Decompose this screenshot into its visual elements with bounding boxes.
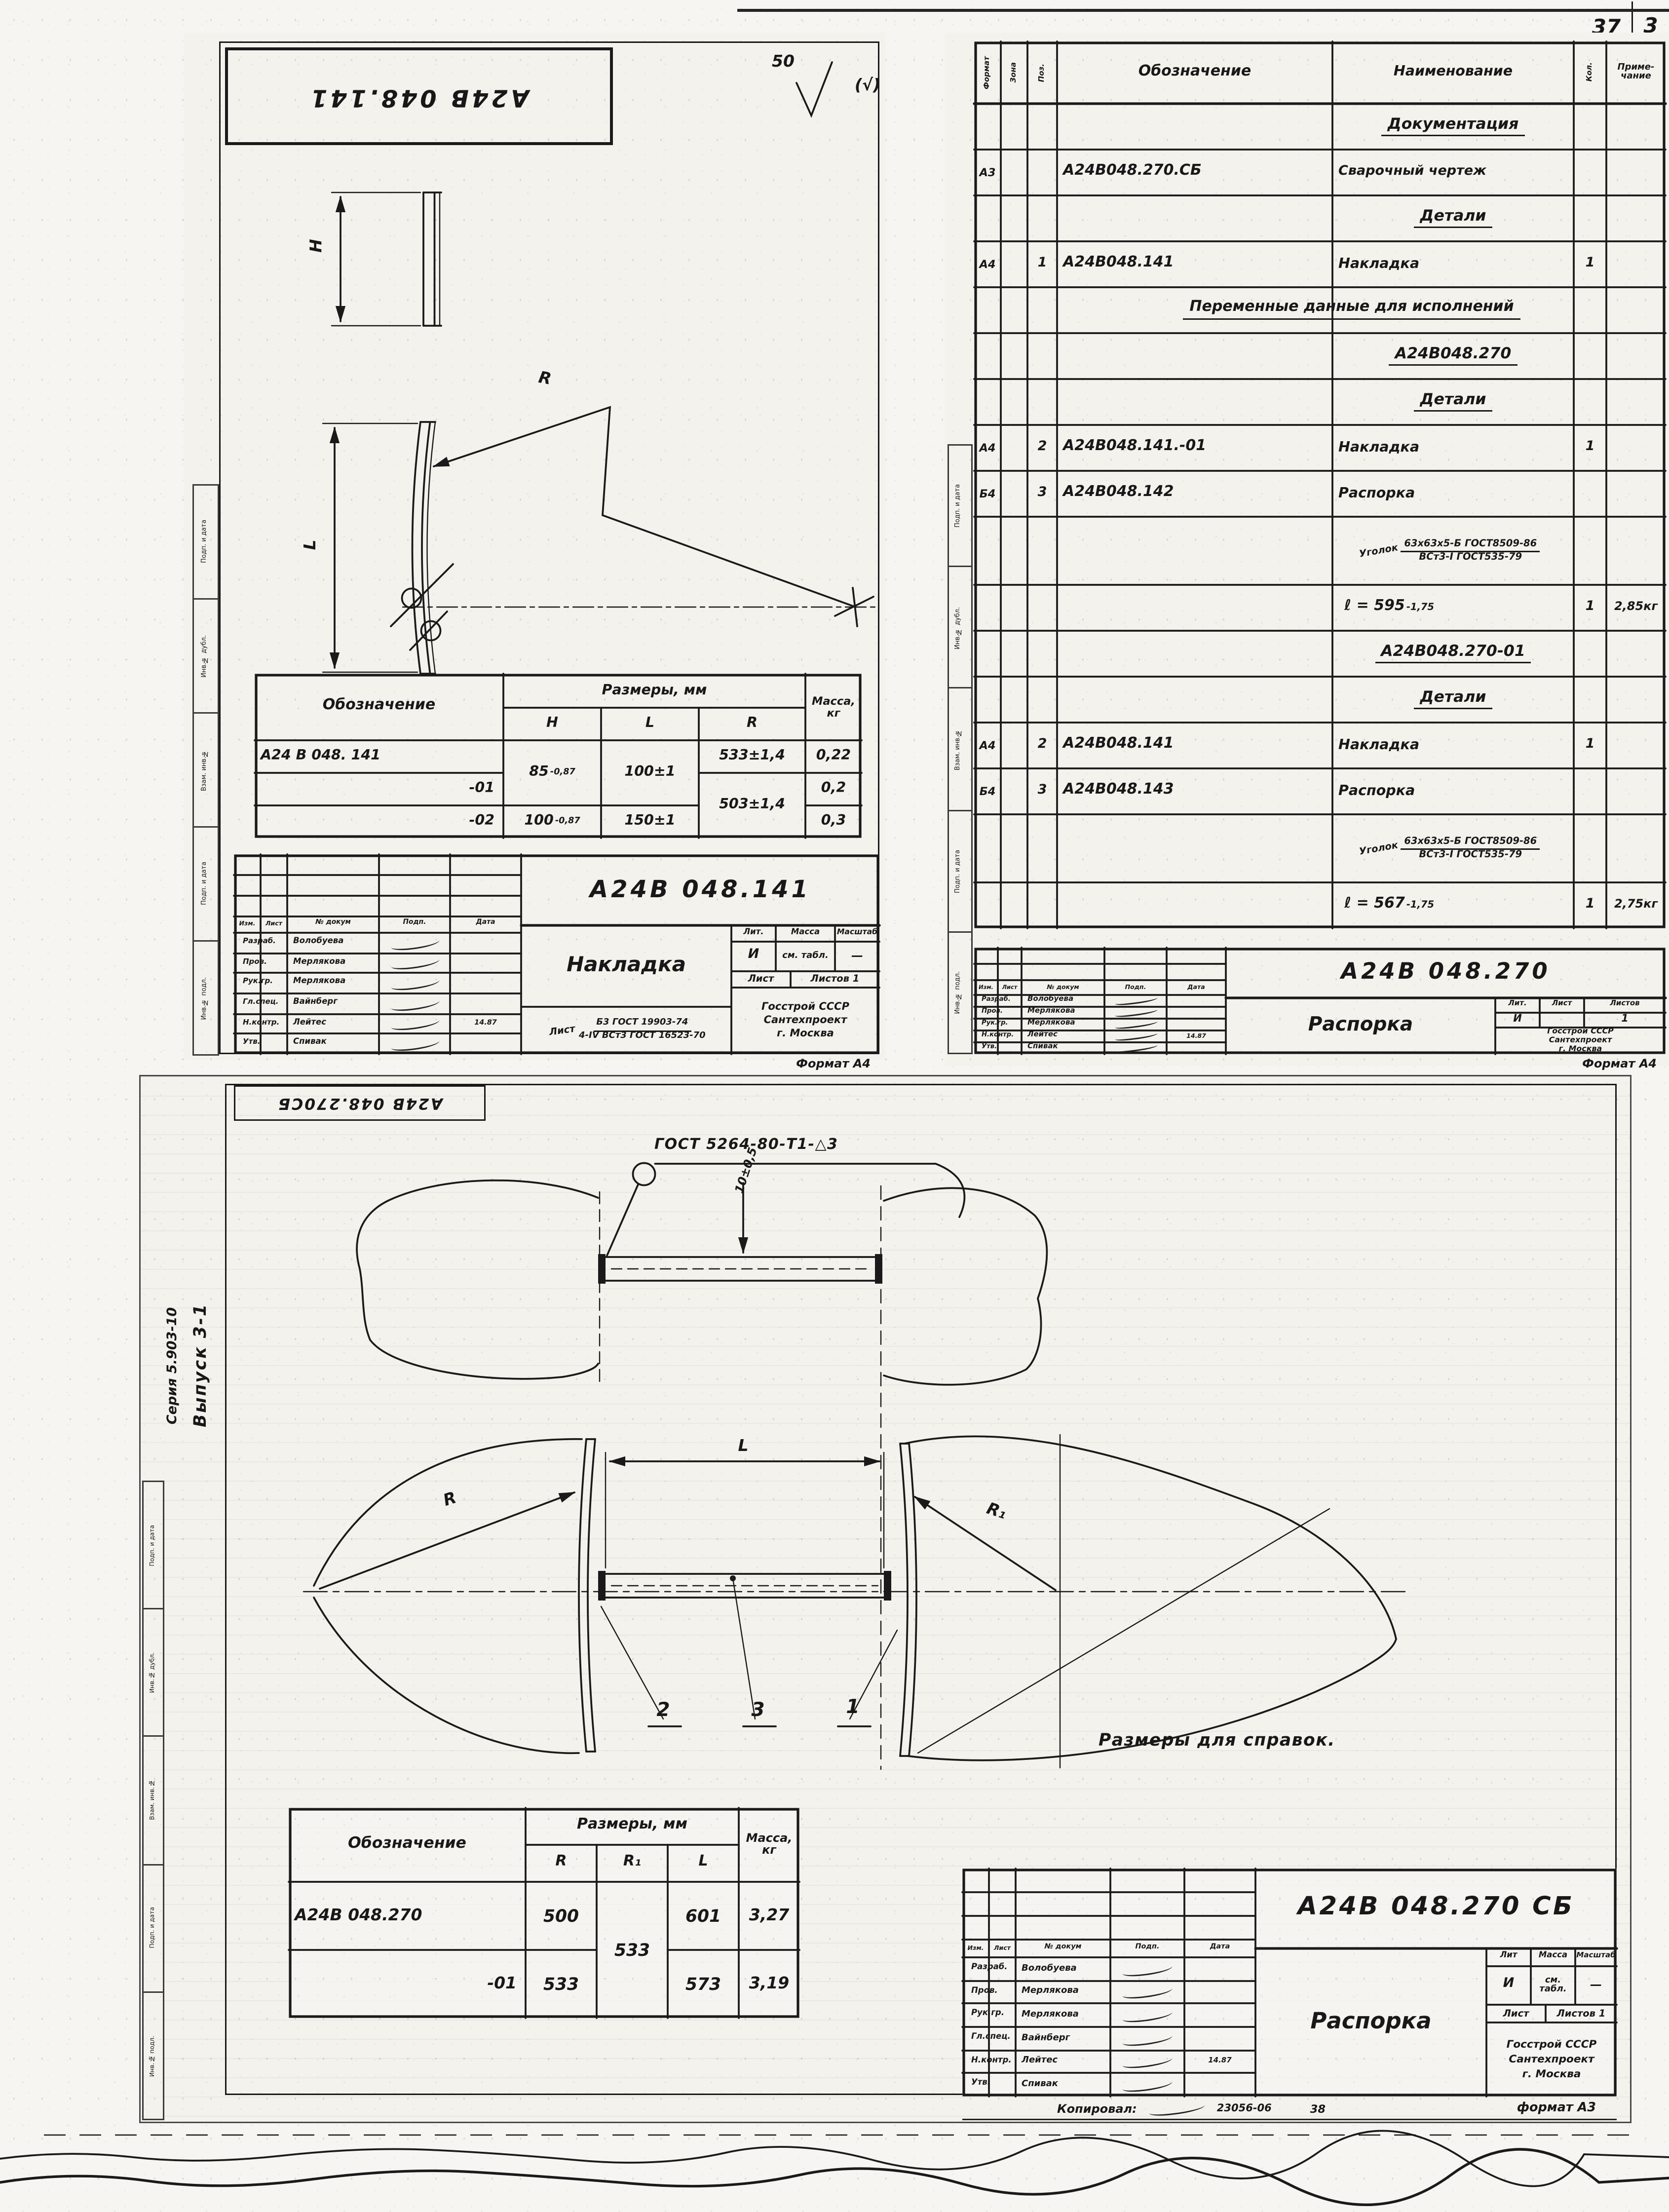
mass-value: см. табл. [1531, 1966, 1575, 2005]
angle-fraction: 63х63х5-Б ГОСТ8509-86 ВСт3-I ГОСТ535-79 [1401, 836, 1540, 861]
doc-number: А24В 048.141 [521, 857, 879, 922]
format-label: Формат [984, 56, 991, 89]
value-mass: 0,2 [805, 773, 862, 805]
section-row: А24В048.270-01 [1332, 631, 1574, 677]
role: Утв. [976, 1042, 1022, 1054]
col-dokum: № докум [287, 916, 379, 933]
col-dokum: № докум [1016, 1940, 1110, 1957]
signature-cell [1110, 2051, 1184, 2073]
org-line2: Сантехпроект [1509, 2052, 1594, 2066]
signature-cell [1104, 1030, 1167, 1042]
value-mass: 3,27 [739, 1882, 799, 1950]
col-r1: R₁ [597, 1845, 668, 1882]
sheets-header: Листов [1584, 998, 1666, 1013]
col-l: L [601, 708, 699, 740]
reference-note: Размеры для справок. [1099, 1729, 1335, 1750]
organization: Госстрой СССР Сантехпроект г. Москва [1495, 1028, 1666, 1054]
sign-date: 14.87 [1184, 2051, 1255, 2073]
material-row: Уголок 63х63х5-Б ГОСТ8509-86 ВСт3-I ГОСТ… [1312, 814, 1587, 882]
lit-value: И [731, 942, 776, 971]
section-row: А24В048.270 [1332, 333, 1574, 379]
col-izm: Изм. [974, 980, 998, 995]
material-bottom: 4-IV ВСт3 ГОСТ 16523-70 [579, 1032, 706, 1042]
sheets-label: Листов 1 [1546, 2005, 1617, 2022]
scanned-drawing-page: 37 3 Подп. и дата Инв.№ дубл. Взам. инв.… [0, 0, 1669, 2212]
margin-label: Подп. и дата [957, 849, 963, 893]
col-izm: Изм. [234, 916, 261, 933]
cell-length: ℓ = 595-1,75 [1332, 585, 1574, 631]
signature-cell [379, 933, 450, 953]
value-h: 85-0,87 [503, 740, 601, 805]
cell-format: А4 [974, 241, 1001, 287]
person-name: Волобуева [287, 933, 379, 953]
mass-header: Масса [1531, 1948, 1575, 1966]
asm-title-block: А24В 048.270 СБ Распорка Лит Масса Масшт… [962, 1869, 1617, 2097]
cell-name: Сварочный чертеж [1332, 150, 1574, 195]
role: Гл.спец. [237, 993, 287, 1014]
person-name: Вайнберг [287, 993, 379, 1014]
margin-label: Инв.№ дубл. [957, 607, 963, 649]
margin-cell: Подп. и дата [194, 486, 218, 600]
copied-label: Копировал: [1057, 2102, 1137, 2115]
cell-qty: 1 [1574, 425, 1606, 471]
col-list: Лист [261, 916, 287, 933]
col-l: L [668, 1845, 739, 1882]
lit-header: Лит [1486, 1948, 1531, 1966]
material-fraction: Б3 ГОСТ 19903-74 4-IV ВСт3 ГОСТ 16523-70 [579, 1019, 706, 1042]
person-name: Спивак [1022, 1042, 1104, 1054]
person-name: Мерлякова [1022, 1007, 1104, 1019]
header-name: Наименование [1332, 41, 1574, 104]
detail-margin-strip: Подп. и дата Инв.№ дубл. Взам. инв.№ Под… [192, 484, 219, 1056]
value-r1: 533 [597, 1882, 668, 2018]
length-tol: -1,75 [1406, 603, 1434, 612]
col-r: R [699, 708, 805, 740]
torn-edge-decoration [0, 2129, 1669, 2209]
person-name: Лейтес [287, 1014, 379, 1033]
person-name: Спивак [287, 1033, 379, 1054]
signature-scribble [390, 996, 439, 1012]
cell-designation: А24В048.141 [1057, 723, 1332, 768]
role: Разраб. [976, 995, 1022, 1007]
mass-value: см. табл. [776, 942, 835, 971]
signature-cell [1104, 1007, 1167, 1019]
header-qty: Кол. [1574, 41, 1606, 104]
h-main: 85 [529, 765, 549, 780]
person-name: Вайнберг [1016, 2027, 1110, 2051]
margin-label: Подп. и дата [957, 484, 963, 528]
org-line3: г. Москва [1522, 2067, 1581, 2081]
signature-cell [379, 1033, 450, 1054]
cell-name: Распорка [1332, 768, 1574, 814]
asm-inverted-stamp: А24В 048.270СБ [234, 1085, 486, 1121]
cell-designation: А24В048.270.СБ [1057, 150, 1332, 195]
cell-pos: 2 [1027, 425, 1057, 471]
cell-format: Б4 [974, 768, 1001, 814]
cell-format: А3 [974, 150, 1001, 195]
section-row-wide: Переменные данные для исполнений [1107, 287, 1596, 333]
margin-cell: Подп. и дата [194, 828, 218, 942]
margin-cell: Инв.№ подл. [949, 932, 971, 1053]
cell-format: Б4 [974, 471, 1001, 517]
role: Утв. [965, 2073, 1016, 2097]
header-zone: Зона [1001, 41, 1027, 104]
section-row: Детали [1332, 379, 1574, 425]
scale-value: — [835, 942, 879, 971]
organization: Госстрой СССР Сантехпроект г. Москва [1486, 2022, 1617, 2097]
roughness-check-icon [794, 59, 838, 121]
margin-label: Взам. инв.№ [150, 1780, 156, 1821]
dim-label-l: L [731, 1436, 755, 1457]
col-h: H [503, 708, 601, 740]
person-name: Мерлякова [1016, 1981, 1110, 2003]
org-line3: г. Москва [777, 1028, 834, 1041]
margin-cell: Инв.№ подл. [194, 942, 218, 1054]
signature-scribble [1122, 2054, 1173, 2070]
role: Н.контр. [237, 1014, 287, 1033]
margin-cell: Подп. и дата [949, 446, 971, 568]
col-podp: Подп. [1104, 980, 1167, 995]
col-sizes: Размеры, мм [526, 1808, 739, 1845]
signature-scribble [390, 1016, 439, 1032]
value-mass: 0,3 [805, 805, 862, 838]
margin-cell: Подп. и дата [949, 811, 971, 933]
margin-label: Инв.№ подл. [150, 2035, 156, 2076]
col-mass: Масса, кг [739, 1808, 799, 1882]
cell-format: А4 [974, 723, 1001, 768]
signature-scribble [390, 975, 439, 992]
signature-scribble [1114, 1031, 1157, 1042]
margin-label: Подп. и дата [203, 520, 209, 564]
role: Рук.гр. [965, 2003, 1016, 2027]
signature-scribble [1114, 1019, 1157, 1030]
margin-cell: Инв.№ подл. [144, 1992, 163, 2119]
copied-format: формат А3 [1517, 2101, 1596, 2116]
mass-label-2: кг [827, 707, 840, 719]
margin-label: Взам. инв.№ [957, 728, 963, 770]
doc-number: А24В 048.270 СБ [1255, 1871, 1617, 1945]
section-title: Документация [1382, 117, 1525, 136]
section-title: Детали [1414, 392, 1492, 412]
cell-pos: 1 [1027, 241, 1057, 287]
doc-number: А24В 048.270 [1226, 948, 1666, 998]
part-name: Накладка [521, 928, 731, 1004]
cell-name: Накладка [1332, 241, 1574, 287]
value-r: 533 [526, 1950, 597, 2018]
col-data: Дата [450, 916, 521, 933]
length-main: ℓ = 567 [1344, 898, 1405, 914]
length-main: ℓ = 595 [1344, 600, 1405, 616]
sign-date: 14.87 [450, 1014, 521, 1033]
spec-margin-strip: Подп. и дата Инв.№ дубл. Взам. инв.№ Под… [948, 444, 973, 1054]
margin-label: Подп. и дата [203, 862, 209, 906]
signature-cell [1110, 1981, 1184, 2003]
person-name: Лейтес [1022, 1030, 1104, 1042]
margin-label: Инв.№ подл. [957, 971, 963, 1014]
material-cell: Лист Б3 ГОСТ 19903-74 4-IV ВСт3 ГОСТ 165… [524, 1008, 731, 1053]
margin-label: Подп. и дата [150, 1907, 156, 1949]
cell-note: 2,85кг [1606, 585, 1666, 631]
asm-margin-strip: Подп. и дата Инв.№ дубл. Взам. инв.№ Под… [142, 1481, 164, 2120]
angle-top: 63х63х5-Б ГОСТ8509-86 [1401, 538, 1540, 552]
copied-num: 38 [1310, 2102, 1326, 2115]
section-row: Детали [1332, 195, 1574, 241]
dim-label-h: H [305, 234, 329, 258]
header-note: Приме-чание [1606, 41, 1666, 104]
mass-header: Масса [776, 925, 835, 942]
signature-cell [379, 973, 450, 993]
signature-scribble [390, 1036, 439, 1052]
note-label-2: чание [1621, 73, 1651, 82]
scan-edge-line [737, 9, 1669, 11]
margin-label: Взам. инв.№ [203, 749, 209, 791]
col-data: Дата [1167, 980, 1226, 995]
signature-cell [1110, 2027, 1184, 2051]
col-list: Лист [989, 1940, 1016, 1957]
section-row: Детали [1332, 677, 1574, 723]
col-data: Дата [1184, 1940, 1255, 1957]
margin-cell: Подп. и дата [144, 1482, 163, 1610]
cell-designation: А24В048.142 [1057, 471, 1332, 517]
lit-header: Лит. [731, 925, 776, 942]
row-designation: -01 [289, 1950, 526, 2018]
signature-scribble [1122, 1984, 1173, 2000]
org-line2: Сантехпроект [1549, 1036, 1612, 1045]
mass-label-2: кг [762, 1845, 776, 1857]
margin-cell: Взам. инв.№ [194, 714, 218, 828]
detail-inverted-stamp: А24В 048.141 [225, 47, 613, 145]
margin-cell: Подп. и дата [144, 1865, 163, 1993]
lit-value: И [1486, 1966, 1531, 2005]
value-l: 100±1 [601, 740, 699, 805]
callout-2: 2 [651, 1700, 675, 1723]
section-row: Документация [1332, 104, 1574, 150]
mass-label-1: Масса, [812, 695, 855, 707]
value-h: 100-0,87 [503, 805, 601, 838]
signature-scribble [390, 955, 439, 971]
dim-label-r: R [531, 365, 559, 393]
role: Пров. [237, 953, 287, 973]
signature-scribble [1148, 2100, 1206, 2117]
value-mass: 3,19 [739, 1950, 799, 2018]
detail-dim-table: Обозначение Размеры, мм Масса, кг H L R … [255, 674, 862, 838]
length-tol: -1,75 [1406, 900, 1434, 910]
org-line1: Госстрой СССР [1507, 2038, 1597, 2052]
h-main: 100 [524, 814, 554, 829]
asm-dim-table: Обозначение Размеры, мм Масса, кг R R₁ L… [289, 1808, 799, 2018]
cell-length: ℓ = 567-1,75 [1332, 882, 1574, 928]
signature-cell [379, 1014, 450, 1033]
cell-name: Накладка [1332, 723, 1574, 768]
section-title: Переменные данные для исполнений [1183, 301, 1519, 320]
spec-title-block: А24В 048.270 Распорка Лит. Лист Листов И… [974, 948, 1666, 1054]
value-r: 503±1,4 [699, 773, 805, 838]
role: Рук.гр. [237, 973, 287, 993]
signature-scribble [1122, 1961, 1173, 1977]
material-prefix: Лист [549, 1024, 576, 1037]
cell-note: 2,75кг [1606, 882, 1666, 928]
margin-cell: Инв.№ дубл. [194, 600, 218, 714]
margin-label: Подп. и дата [150, 1525, 156, 1566]
part-name: Распорка [1255, 1951, 1486, 2094]
cell-qty: 1 [1574, 723, 1606, 768]
signature-scribble [1114, 1007, 1157, 1018]
material-row: Уголок 63х63х5-Б ГОСТ8509-86 ВСт3-I ГОСТ… [1312, 517, 1587, 585]
col-list: Лист [998, 980, 1022, 995]
roughness-note: (√) [841, 71, 894, 101]
cell-qty: 1 [1574, 241, 1606, 287]
col-r: R [526, 1845, 597, 1882]
cell-name: Распорка [1332, 471, 1574, 517]
pos-label: Поз. [1039, 63, 1046, 81]
signature-scribble [390, 935, 439, 952]
zone-label: Зона [1011, 62, 1018, 82]
signature-scribble [1122, 2007, 1173, 2023]
signature-cell [1110, 2073, 1184, 2097]
signature-scribble [1122, 2030, 1173, 2047]
role: Н.контр. [976, 1030, 1022, 1042]
role: Рук.гр. [976, 1019, 1022, 1030]
sign-date: 14.87 [1167, 1030, 1226, 1042]
qty-label: Кол. [1587, 63, 1594, 82]
stamp-doc-number: А24В 048.141 [308, 84, 530, 109]
margin-cell: Инв.№ дубл. [949, 568, 971, 689]
signature-scribble [1114, 995, 1157, 1006]
cell-pos: 3 [1027, 768, 1057, 814]
material-top: Б3 ГОСТ 19903-74 [593, 1019, 691, 1032]
role: Утв. [237, 1033, 287, 1054]
signature-cell [1110, 2003, 1184, 2027]
h-tol: -0,87 [555, 817, 580, 827]
sheet-header: Лист [1540, 998, 1584, 1013]
person-name: Мерлякова [287, 953, 379, 973]
part-name: Распорка [1226, 998, 1495, 1054]
col-mass: Масса, кг [805, 674, 862, 740]
sheet-label: Лист [731, 971, 791, 988]
angle-prefix: Уголок [1359, 840, 1399, 857]
margin-label: Инв.№ дубл. [150, 1652, 156, 1693]
issue-label: Выпуск 3-1 [190, 1232, 210, 1498]
copied-code: 23056-06 [1217, 2102, 1272, 2114]
lit-header: Лит. [1495, 998, 1540, 1013]
signature-cell [1104, 995, 1167, 1007]
org-line1: Госстрой СССР [1547, 1028, 1614, 1036]
angle-top: 63х63х5-Б ГОСТ8509-86 [1401, 836, 1540, 850]
col-izm: Изм. [962, 1940, 989, 1957]
margin-cell: Взам. инв.№ [144, 1737, 163, 1865]
person-name: Мерлякова [1022, 1019, 1104, 1030]
header-pos: Поз. [1027, 41, 1057, 104]
col-designation: Обозначение [289, 1808, 526, 1882]
role: Пров. [976, 1007, 1022, 1019]
dim-label-l: L [299, 533, 323, 557]
margin-label: Инв.№ дубл. [203, 635, 209, 677]
signature-scribble [1114, 1043, 1157, 1054]
role: Разраб. [965, 1957, 1016, 1981]
format-note: Формат А4 [696, 1056, 879, 1073]
series-label: Серия 5.903-10 [166, 1221, 181, 1510]
col-dokum: № докум [1022, 980, 1104, 995]
angle-bottom: ВСт3-I ГОСТ535-79 [1419, 850, 1522, 861]
sheet-label: Лист [1486, 2005, 1546, 2022]
value-r: 533±1,4 [699, 740, 805, 773]
value-l: 573 [668, 1950, 739, 2018]
spec-table: Формат Зона Поз. Обозначение Наименовани… [974, 41, 1666, 928]
scale-header: Масштаб [835, 925, 879, 942]
assembly-drawing [222, 1133, 1525, 1784]
scale-value: — [1575, 1966, 1617, 2005]
role: Гл.спец. [965, 2027, 1016, 2051]
callout-1: 1 [841, 1697, 865, 1720]
lit-value: И [1495, 1013, 1540, 1028]
person-name: Мерлякова [1016, 2003, 1110, 2027]
org-line3: г. Москва [1559, 1045, 1602, 1054]
margin-cell: Инв.№ дубл. [144, 1610, 163, 1738]
section-title: Детали [1414, 209, 1492, 228]
cell-qty: 1 [1574, 882, 1606, 928]
org-line2: Сантехпроект [764, 1014, 847, 1028]
col-sizes: Размеры, мм [503, 674, 805, 708]
cell-qty: 1 [1574, 585, 1606, 631]
col-designation: Обозначение [255, 674, 503, 740]
stamp-doc-number: А24В 048.270СБ [277, 1095, 443, 1111]
row-designation: А24В 048.270 [289, 1882, 526, 1950]
header-format: Формат [974, 41, 1001, 104]
row-designation: -01 [255, 773, 503, 805]
role: Разраб. [237, 933, 287, 953]
cell-pos: 3 [1027, 471, 1057, 517]
angle-fraction: 63х63х5-Б ГОСТ8509-86 ВСт3-I ГОСТ535-79 [1401, 538, 1540, 564]
signature-cell [379, 953, 450, 973]
value-r: 500 [526, 1882, 597, 1950]
signature-cell [379, 993, 450, 1014]
person-name: Волобуева [1016, 1957, 1110, 1981]
header-designation: Обозначение [1057, 41, 1332, 104]
cell-designation: А24В048.143 [1057, 768, 1332, 814]
scale-header: Масштаб [1575, 1948, 1617, 1966]
section-title: А24В048.270 [1389, 346, 1517, 366]
format-note: Формат А4 [1480, 1056, 1666, 1073]
cell-format: А4 [974, 425, 1001, 471]
detail-title-block: А24В 048.141 Накладка Лист Б3 ГОСТ 19903… [234, 854, 879, 1054]
signature-cell [1104, 1019, 1167, 1030]
row-designation: А24 В 048. 141 [255, 740, 503, 773]
margin-label: Инв.№ подл. [203, 977, 209, 1019]
sheets-value: 1 [1584, 1013, 1666, 1028]
role: Пров. [965, 1981, 1016, 2003]
section-title: А24В048.270-01 [1375, 644, 1531, 663]
cell-designation: А24В048.141.-01 [1057, 425, 1332, 471]
h-tol: -0,87 [550, 768, 575, 778]
cell-designation: А24В048.141 [1057, 241, 1332, 287]
row-designation: -02 [255, 805, 503, 838]
value-l: 150±1 [601, 805, 699, 838]
role: Н.контр. [965, 2051, 1016, 2073]
angle-prefix: Уголок [1359, 542, 1399, 559]
sheets-label: Листов 1 [791, 971, 879, 988]
value-l: 601 [668, 1882, 739, 1950]
col-podp: Подп. [379, 916, 450, 933]
person-name: Волобуева [1022, 995, 1104, 1007]
person-name: Спивак [1016, 2073, 1110, 2097]
organization: Госстрой СССР Сантехпроект г. Москва [731, 988, 879, 1054]
copied-line: Копировал: 23056-06 38 формат А3 [962, 2098, 1617, 2120]
margin-cell: Взам. инв.№ [949, 689, 971, 811]
section-title: Детали [1414, 690, 1492, 709]
value-mass: 0,22 [805, 740, 862, 773]
signature-scribble [1122, 2076, 1173, 2093]
angle-bottom: ВСт3-I ГОСТ535-79 [1419, 552, 1522, 563]
